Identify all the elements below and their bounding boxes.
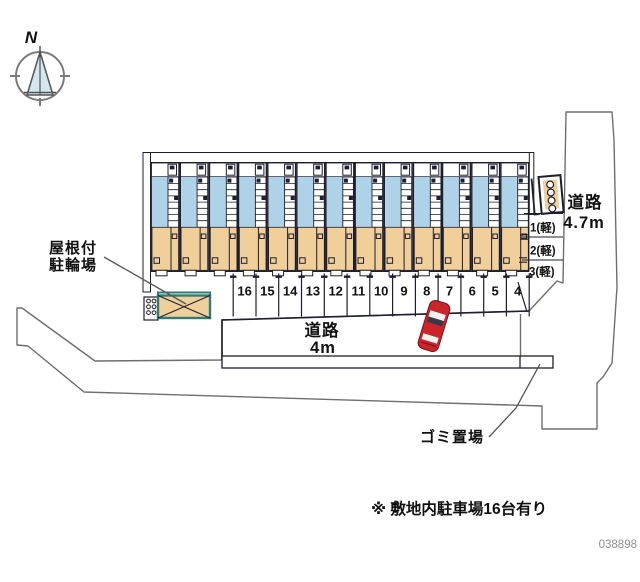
parking-space-number: 12 xyxy=(328,284,342,299)
building-unit xyxy=(239,163,267,276)
building-unit xyxy=(384,163,412,276)
building-unit xyxy=(472,163,500,276)
building-unit xyxy=(326,163,354,276)
utility-box xyxy=(531,175,563,214)
parking-space-number: 9 xyxy=(400,284,407,299)
building-unit xyxy=(210,163,238,276)
compass: N xyxy=(10,28,70,106)
kei-space-label: 2(軽) xyxy=(530,244,556,258)
covered-bicycle-parking xyxy=(144,293,210,321)
west-passage xyxy=(143,153,151,293)
building-unit xyxy=(443,163,471,276)
building-unit xyxy=(414,163,442,276)
bicycle-parking-label-line2: 駐輪場 xyxy=(49,256,97,274)
compass-north-label: N xyxy=(25,28,38,47)
building xyxy=(143,153,534,293)
kei-space-label: 1(軽) xyxy=(530,221,556,235)
sidewalk-strip xyxy=(222,356,553,368)
drawing-number: 038898 xyxy=(599,539,637,551)
road-right-label-line1: 道路 xyxy=(568,192,603,212)
road-bottom-label-line1: 道路 xyxy=(305,320,340,340)
garbage-area-label: ゴミ置場 xyxy=(420,428,484,446)
parking-space-number: 16 xyxy=(237,284,251,299)
parking-row: 16 15 14 13 12 11 10 9 8 7 6 5 4 xyxy=(230,274,532,317)
building-unit xyxy=(180,163,208,276)
bicycle-parking-label-line1: 屋根付 xyxy=(49,239,97,257)
parking-space-number: 7 xyxy=(446,284,453,299)
parking-space-number: 8 xyxy=(423,284,430,299)
garbage-leader-line xyxy=(489,364,540,437)
kei-space-label: 3(軽) xyxy=(529,265,555,279)
building-unit xyxy=(268,163,296,276)
parked-car xyxy=(417,299,452,353)
parking-space-number: 15 xyxy=(260,284,274,299)
site-plan: 16 15 14 13 12 11 10 9 8 7 6 5 4 1(軽) 2(… xyxy=(0,0,640,582)
building-unit xyxy=(501,163,529,276)
road-right-label-line2: 4.7m xyxy=(563,214,605,232)
parking-space-number: 10 xyxy=(374,284,388,299)
north-passage xyxy=(143,153,533,163)
parking-space-number: 4 xyxy=(514,284,522,299)
parking-note: ※ 敷地内駐車場16台有り xyxy=(371,499,547,518)
building-unit xyxy=(355,163,383,276)
road-bottom-label-line2: 4m xyxy=(310,339,336,357)
parking-space-number: 11 xyxy=(352,284,366,299)
parking-space-number: 13 xyxy=(306,284,320,299)
parking-space-number: 6 xyxy=(469,284,476,299)
parking-space-number: 5 xyxy=(491,284,498,299)
building-unit xyxy=(297,163,325,276)
building-unit xyxy=(151,163,179,276)
parking-space-number: 14 xyxy=(283,284,298,299)
